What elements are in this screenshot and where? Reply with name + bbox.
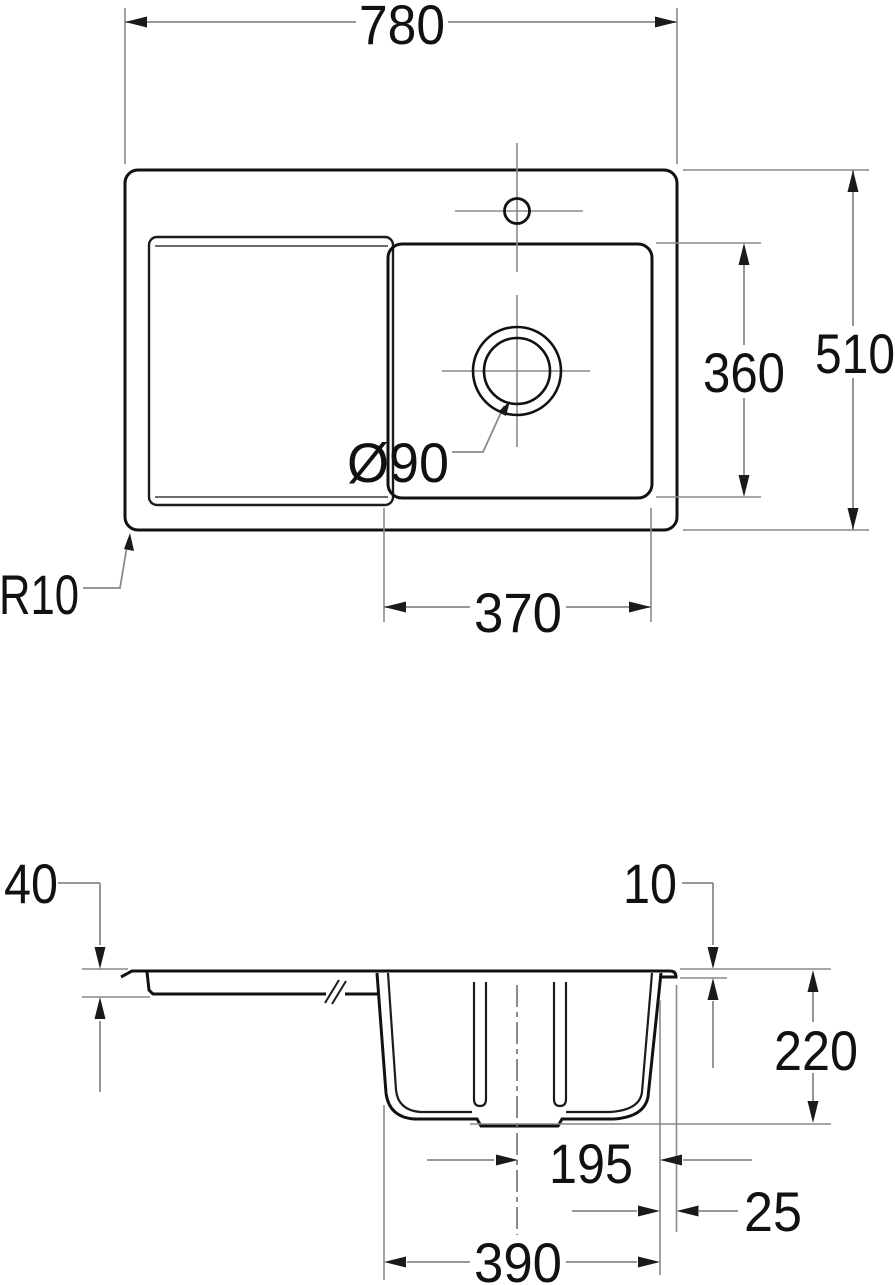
dim-40-arrow-top xyxy=(95,947,106,969)
dim-390-arrow-right xyxy=(638,1257,660,1268)
section-drain-edge-left xyxy=(474,982,486,1106)
dim-370-arrow-left xyxy=(384,602,406,613)
dim-label-220: 220 xyxy=(774,1019,858,1082)
dim-370: 370 xyxy=(384,508,651,644)
dim-360-arrow-top xyxy=(739,243,750,265)
dim-25-arrow-left xyxy=(638,1206,660,1217)
dim-780: 780 xyxy=(125,0,677,164)
dim-360-arrow-bottom xyxy=(739,475,750,497)
section-break-slash-2 xyxy=(332,981,346,1004)
dim-390: 390 xyxy=(384,1231,660,1285)
dim-10-arrow-top xyxy=(708,947,719,969)
dim-label-780: 780 xyxy=(359,0,445,56)
dim-label-10: 10 xyxy=(623,852,677,915)
dim-r10: R10 xyxy=(0,533,134,626)
dim-label-r10: R10 xyxy=(0,563,79,626)
section-view: 40 10 220 xyxy=(4,852,858,1285)
dim-220-arrow-bottom xyxy=(808,1101,819,1123)
r10-leader-arrowhead xyxy=(124,533,134,551)
dim-40-arrow-bottom xyxy=(95,997,106,1019)
dim-370-arrow-right xyxy=(629,602,651,613)
dim-25-arrow-right xyxy=(677,1206,699,1217)
dim-label-drain-diameter: Ø90 xyxy=(347,431,449,494)
dim-510-arrow-top xyxy=(848,170,859,192)
section-bowl-inner-wall-right xyxy=(566,973,652,1112)
section-bowl-outer-wall xyxy=(377,973,661,1126)
dim-label-40: 40 xyxy=(4,852,58,915)
dim-220-arrow-top xyxy=(808,970,819,992)
section-bowl-inner-wall-left xyxy=(388,973,472,1112)
dim-label-370: 370 xyxy=(474,581,562,644)
dim-780-arrow-left xyxy=(125,17,147,28)
section-top-surface xyxy=(121,971,676,977)
dim-label-390: 390 xyxy=(474,1231,562,1285)
section-break-slash-1 xyxy=(325,980,339,1003)
dim-10: 10 xyxy=(623,852,727,1068)
dim-195-arrow-left xyxy=(496,1155,518,1166)
top-view: Ø90 780 510 3 xyxy=(0,0,895,644)
dim-780-arrow-right xyxy=(655,17,677,28)
dim-10-arrow-bottom xyxy=(708,978,719,1000)
r10-leader-line xyxy=(83,540,128,588)
dim-510-arrow-bottom xyxy=(848,508,859,530)
section-drain-edge-right xyxy=(554,982,566,1106)
sink-dimension-drawing: Ø90 780 510 3 xyxy=(0,0,895,1285)
dim-label-510: 510 xyxy=(815,322,895,385)
dim-label-195: 195 xyxy=(549,1132,633,1195)
technical-drawing-page: Ø90 780 510 3 xyxy=(0,0,895,1285)
dim-360: 360 xyxy=(656,243,785,497)
dim-220: 220 xyxy=(470,969,858,1124)
dim-390-arrow-left xyxy=(384,1257,406,1268)
dim-195: 195 xyxy=(427,1132,752,1195)
section-rim-underside-left xyxy=(147,972,326,994)
dim-label-25: 25 xyxy=(744,1180,802,1243)
dim-label-360: 360 xyxy=(703,341,785,404)
drain-leader-line xyxy=(452,406,504,452)
dim-195-arrow-right xyxy=(660,1155,682,1166)
